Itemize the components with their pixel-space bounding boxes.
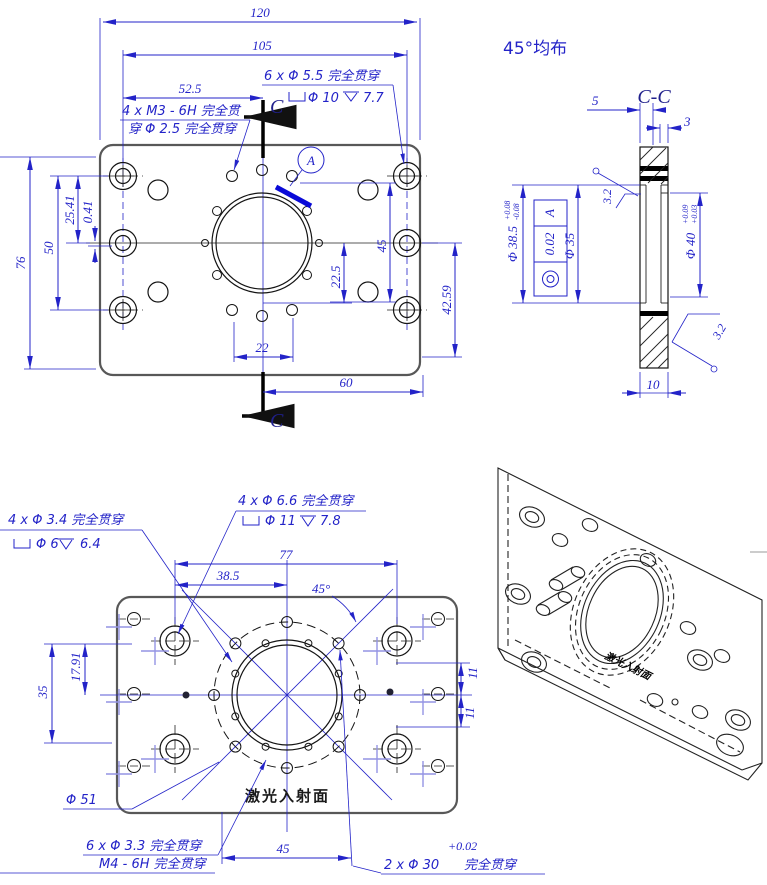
dim-22-5: 22.5 [328, 265, 343, 288]
bottom-view: 77 38.5 45° 17.91 35 11 11 45 4 x Φ 3.4 … [0, 493, 545, 874]
dim-77: 77 [280, 547, 294, 562]
depth-icon [300, 516, 316, 526]
section-title: C-C [637, 86, 671, 108]
dim-38-5: 38.5 [216, 568, 240, 583]
callout-4x6-6: 4 x Φ 6.6 完全贯穿 [238, 493, 355, 509]
counterbore-icon [243, 516, 259, 525]
dim-10: 10 [647, 377, 661, 392]
dim-22: 22 [256, 340, 270, 355]
section-inner-lines [640, 185, 668, 303]
callout-m4: M4 - 6H 完全贯穿 [99, 856, 208, 872]
angle-45-label: 45° [312, 581, 330, 596]
dim-105: 105 [252, 38, 272, 53]
dim-11-lower: 11 [462, 707, 477, 719]
dim-45: 45 [374, 239, 389, 253]
depth-icon [343, 92, 359, 101]
callout-2x30-suffix: 完全贯穿 [464, 857, 518, 873]
pin-hole [183, 692, 190, 699]
iso-engraved-label: 激光入射面 [602, 650, 655, 682]
phi38-5-lower-tol: -0.08 [512, 203, 521, 220]
pin-hole [387, 689, 394, 696]
phi40-lower-tol: +0.03 [690, 205, 699, 224]
dim-42-59: 42.59 [439, 285, 454, 315]
dim-phi35: Φ 35 [562, 232, 577, 259]
callout-6x5-5-cb: Φ 10 [308, 91, 339, 106]
dim-phi40: Φ 40 +0.09 +0.03 [681, 205, 699, 259]
finish-left-value: 3.2 [600, 189, 614, 205]
pattern-note: 45°均布 [503, 39, 567, 59]
concentricity-icon-inner [547, 276, 554, 283]
phi38-5-upper-tol: +0.08 [503, 201, 512, 220]
front-view: A C C 120 105 52.5 76 50 25.41 0.41 [0, 5, 462, 432]
iso-view: 激光入射面 [498, 468, 767, 780]
roughness-icon [616, 194, 641, 208]
dim-45-bottom: 45 [277, 841, 291, 856]
dim-35: 35 [35, 685, 50, 700]
dim-76: 76 [13, 256, 28, 270]
callout-6x5-5: 6 x Φ 5.5 完全贯穿 [264, 68, 381, 84]
callout-4xm3-line2: 穿 Φ 2.5 完全贯穿 [128, 121, 238, 137]
callout-4x3-4-depth: 6.4 [80, 537, 101, 552]
dim-5: 5 [592, 93, 599, 108]
counterbore-icon [289, 92, 305, 101]
section-letter-top: C [270, 96, 284, 118]
surface-finish-right: 3.2 [672, 314, 729, 372]
detail-a-label: A [306, 153, 315, 168]
callout-2x30-tol: +0.02 [448, 839, 477, 853]
fcf-datum: A [542, 209, 557, 218]
callout-4xm3-line1: 4 x M3 - 6H 完全贯 [122, 103, 242, 119]
callout-4x3-4-cb: Φ 6 [36, 537, 59, 552]
callout-4x3-4: 4 x Φ 3.4 完全贯穿 [8, 512, 125, 528]
laser-face-label: 激光入射面 [245, 787, 330, 805]
dim-17-91: 17.91 [68, 652, 83, 681]
callout-4x6-6-depth: 7.8 [320, 514, 341, 529]
dim-3: 3 [683, 114, 691, 129]
phi40-upper-tol: +0.09 [681, 205, 690, 224]
section-view: C-C 5 3 10 Φ 38.5 [503, 86, 729, 398]
dim-11-upper: 11 [465, 667, 480, 679]
section-letter-bottom: C [270, 410, 284, 432]
callout-2x30: 2 x Φ 30 [384, 858, 439, 873]
dim-25-41: 25.41 [62, 195, 77, 224]
iso-holes [502, 503, 754, 760]
concentricity-icon [543, 271, 559, 287]
drawing-canvas: A C C 120 105 52.5 76 50 25.41 0.41 [0, 0, 767, 885]
surface-finish-left: 3.2 [593, 168, 641, 208]
fcf-tolerance: 0.02 [542, 232, 557, 255]
svg-text:Φ 38.5: Φ 38.5 [505, 226, 520, 262]
svg-text:Φ 40: Φ 40 [683, 232, 698, 259]
dim-0-41: 0.41 [80, 201, 95, 224]
dim-60: 60 [340, 375, 354, 390]
dim-120: 120 [250, 5, 270, 20]
dim-52-5: 52.5 [179, 81, 202, 96]
counterbore-icon [14, 539, 30, 548]
cad-drawing-sheet: A C C 120 105 52.5 76 50 25.41 0.41 [0, 0, 767, 885]
callout-4x6-6-cb: Φ 11 [265, 514, 296, 529]
callout-phi51: Φ 51 [66, 793, 97, 808]
section-seal-bands [640, 166, 668, 316]
callout-6x5-5-depth: 7.7 [363, 91, 384, 106]
dim-phi38-5: Φ 38.5 +0.08 -0.08 [503, 201, 521, 262]
finish-right-value: 3.2 [709, 322, 729, 343]
dim-50: 50 [41, 241, 56, 255]
depth-icon [58, 539, 74, 549]
callout-6x3-3: 6 x Φ 3.3 完全贯穿 [86, 838, 203, 854]
